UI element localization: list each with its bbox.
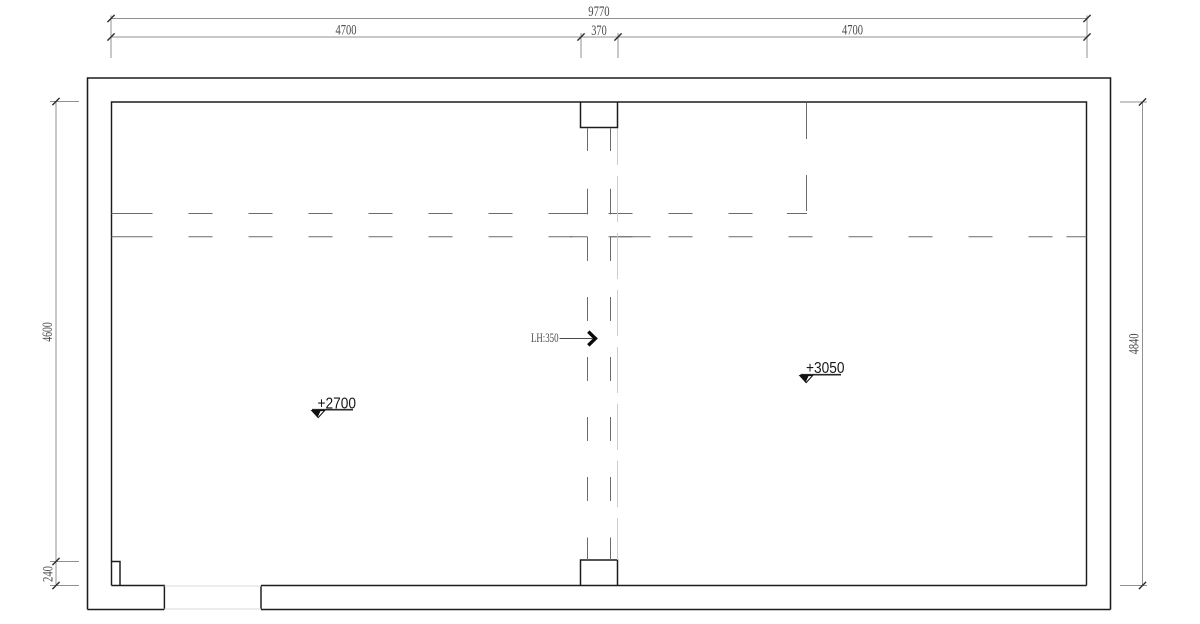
svg-text:4600: 4600 [40, 322, 56, 342]
svg-text:4840: 4840 [1127, 334, 1143, 355]
svg-text:4700: 4700 [842, 23, 863, 39]
svg-text:240: 240 [41, 566, 57, 582]
svg-text:LH:350: LH:350 [531, 331, 559, 345]
svg-text:9770: 9770 [588, 4, 609, 20]
svg-text:370: 370 [591, 23, 606, 39]
svg-text:4700: 4700 [336, 23, 357, 39]
